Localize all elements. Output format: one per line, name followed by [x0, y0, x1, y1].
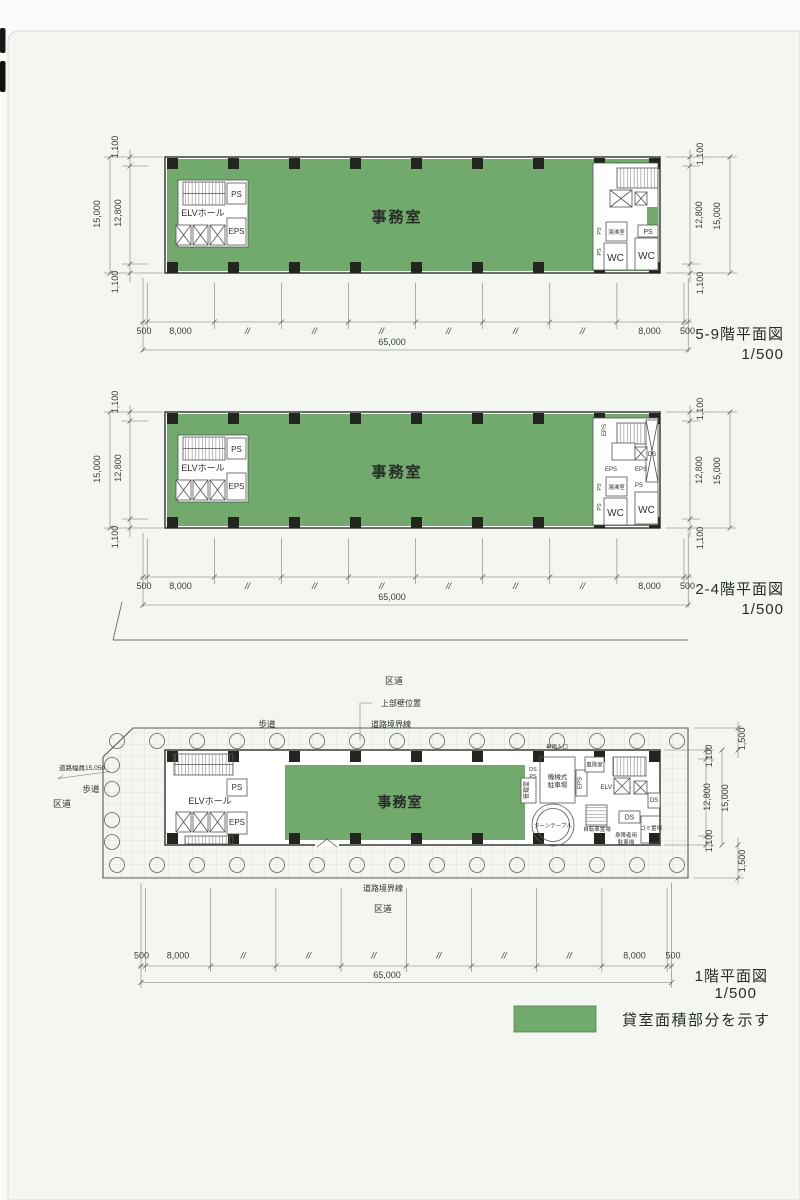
room-label-eps: EPS: [635, 467, 647, 473]
room-label-mech-parking: 機械式: [548, 772, 568, 781]
room-label-ps: PS: [231, 190, 242, 199]
dim-15000: 15,000: [712, 202, 722, 230]
room-label-elv-hall: ELVホール: [188, 796, 231, 806]
dim-1100: 1,100: [110, 526, 120, 549]
room-label-ps: PS: [597, 248, 603, 256]
label-disabled-parking: 身障者用: [615, 831, 637, 839]
room-label-elv-hall: ELVホール: [181, 208, 224, 218]
core-right: DS EPS EPS EPS 湯沸室 PS WC WC PS PS: [593, 418, 658, 525]
plan-scale-5-9: 1/500: [741, 346, 784, 363]
room-label-wc: WC: [607, 253, 624, 264]
dim-500: 500: [136, 581, 151, 591]
room-label-ps: PS: [231, 445, 242, 454]
dim-1100: 1,100: [695, 527, 705, 550]
dim-15000: 15,000: [92, 455, 102, 483]
label-disabled-parking: 駐車場: [618, 838, 635, 846]
elevator-shaft: [210, 225, 225, 245]
bicycle-racks: [586, 805, 607, 826]
dim-12800: 12,800: [113, 454, 123, 482]
dim-15000: 15,000: [712, 457, 722, 485]
scan-artifact: [0, 28, 6, 53]
room-label-ds: DS: [625, 815, 635, 822]
room-label-ps: PS: [597, 503, 603, 511]
dim-65000: 65,000: [373, 970, 401, 980]
dim-500: 500: [680, 326, 695, 336]
core-right: 湯沸室 PS WC WC PS PS: [593, 163, 658, 270]
dim-1100: 1,100: [110, 271, 120, 294]
label-ward-road-left: 区道: [53, 798, 71, 809]
elevator-shaft: [193, 812, 208, 832]
label-ward-road-top: 区道: [385, 675, 403, 686]
plan-title-2-4: 2-4階平面図: [695, 581, 784, 598]
dim-500: 500: [136, 326, 151, 336]
dim-1100: 1,100: [704, 745, 714, 768]
room-label-ds: DS: [650, 798, 658, 804]
core-left: PS ELVホール EPS: [176, 180, 248, 247]
dim-12800: 12,800: [113, 199, 123, 227]
dim-8000: 8,000: [167, 951, 190, 961]
label-sidewalk-top: 歩道: [258, 719, 276, 729]
dim-8000: 8,000: [638, 581, 661, 591]
dim-1100: 1,100: [695, 272, 705, 295]
dim-500: 500: [665, 951, 680, 961]
room-label-eps: EPS: [228, 227, 244, 236]
room-label-ps: PS: [529, 774, 537, 780]
label-road-boundary-top: 道路境界線: [371, 719, 411, 729]
elevator-shaft: [210, 480, 225, 500]
dim-8000: 8,000: [623, 951, 646, 961]
legend-label: 貸室面積部分を示す: [622, 1012, 771, 1029]
dim-1100: 1,100: [110, 136, 120, 159]
stair: [185, 836, 233, 844]
elevator-shaft: [176, 812, 191, 832]
label-garbage-area: ゴミ置場: [640, 824, 663, 832]
dim-500: 500: [134, 951, 149, 961]
label-road-boundary-bottom: 道路境界線: [363, 883, 403, 893]
dim-1500: 1,500: [737, 850, 747, 873]
room-label-hot-water: 湯沸室: [608, 483, 625, 491]
room-label-elv-hall: ELVホール: [181, 463, 224, 473]
room-label-office: 事務室: [371, 208, 422, 226]
room-label-wc: WC: [638, 251, 655, 262]
room-label-wc: WC: [607, 508, 624, 519]
label-turntable: ターンテーブル: [534, 822, 572, 830]
core-left: PS ELVホール EPS: [176, 435, 248, 502]
room-label-eps: EPS: [602, 424, 608, 436]
room-label-ds: DS: [648, 452, 656, 458]
dim-15000: 15,000: [720, 784, 730, 812]
dim-8000: 8,000: [169, 326, 192, 336]
dim-65000: 65,000: [378, 592, 406, 602]
stair: [617, 168, 658, 188]
dim-1100: 1,100: [695, 143, 705, 166]
rental-area-patch: [647, 207, 658, 227]
elevator-shaft: [193, 480, 208, 500]
dim-12800: 12,800: [694, 201, 704, 229]
legend-swatch: [514, 1006, 596, 1032]
room-label-windbreak: 風除室: [586, 761, 603, 769]
dim-500: 500: [680, 581, 695, 591]
scanned-drawing-page: PS ELVホール EPS 湯沸室 PS WC WC PS PS 事務室 1,1…: [0, 0, 800, 1200]
plan-title-1: 1階平面図: [695, 968, 768, 985]
dim-1500: 1,500: [737, 728, 747, 751]
dim-8000: 8,000: [169, 581, 192, 591]
dim-65000: 65,000: [378, 337, 406, 347]
dim-12800: 12,800: [702, 783, 712, 811]
label-sidewalk-left: 歩道: [82, 784, 100, 794]
elevator-shaft: [176, 225, 191, 245]
stair: [617, 423, 647, 444]
stair: [613, 757, 646, 776]
elevator-shaft: [176, 480, 191, 500]
plan-scale-1: 1/500: [714, 985, 757, 1002]
label-road-width: 道路幅員15,050: [59, 763, 105, 772]
dim-12800: 12,800: [694, 456, 704, 484]
room-label-eps: EPS: [229, 818, 245, 827]
label-upper-wall-position: 上部壁位置: [381, 698, 421, 708]
dim-8000: 8,000: [638, 326, 661, 336]
label-ward-road-bottom: 区道: [374, 903, 392, 914]
dim-15000: 15,000: [92, 200, 102, 228]
room-label-eps: EPS: [605, 467, 617, 473]
room-label-ds: DS: [529, 767, 537, 773]
dim-1100: 1,100: [704, 830, 714, 853]
room-label-ps: PS: [643, 229, 653, 236]
room-label-mech-parking: 駐車場: [548, 780, 568, 789]
scan-artifact: [0, 61, 6, 92]
plan-title-5-9: 5-9階平面図: [695, 326, 784, 343]
room-label-hot-water: 湯沸室: [608, 228, 625, 236]
elevator-shaft: [193, 225, 208, 245]
room-label-eps: EPS: [228, 482, 244, 491]
room-label-ps: PS: [597, 483, 603, 491]
room-label-eps: EPS: [578, 777, 584, 789]
entrance-gap: [315, 842, 339, 847]
dim-1100: 1,100: [695, 398, 705, 421]
room-label-ps: PS: [597, 227, 603, 235]
room-label-control: 管理室: [523, 781, 531, 799]
elevator-shaft: [210, 812, 225, 832]
label-vehicle-entrance: 車両入口: [546, 743, 568, 751]
room-label-ps: PS: [635, 483, 643, 489]
room-label-wc: WC: [638, 505, 655, 516]
dim-1100: 1,100: [110, 391, 120, 414]
room-label-office: 事務室: [371, 463, 422, 481]
room-label-office: 事務室: [378, 794, 423, 810]
label-bicycle-parking: 自転車置場: [583, 825, 611, 833]
room-label-ps: PS: [232, 783, 243, 792]
plan-scale-2-4: 1/500: [741, 601, 784, 618]
